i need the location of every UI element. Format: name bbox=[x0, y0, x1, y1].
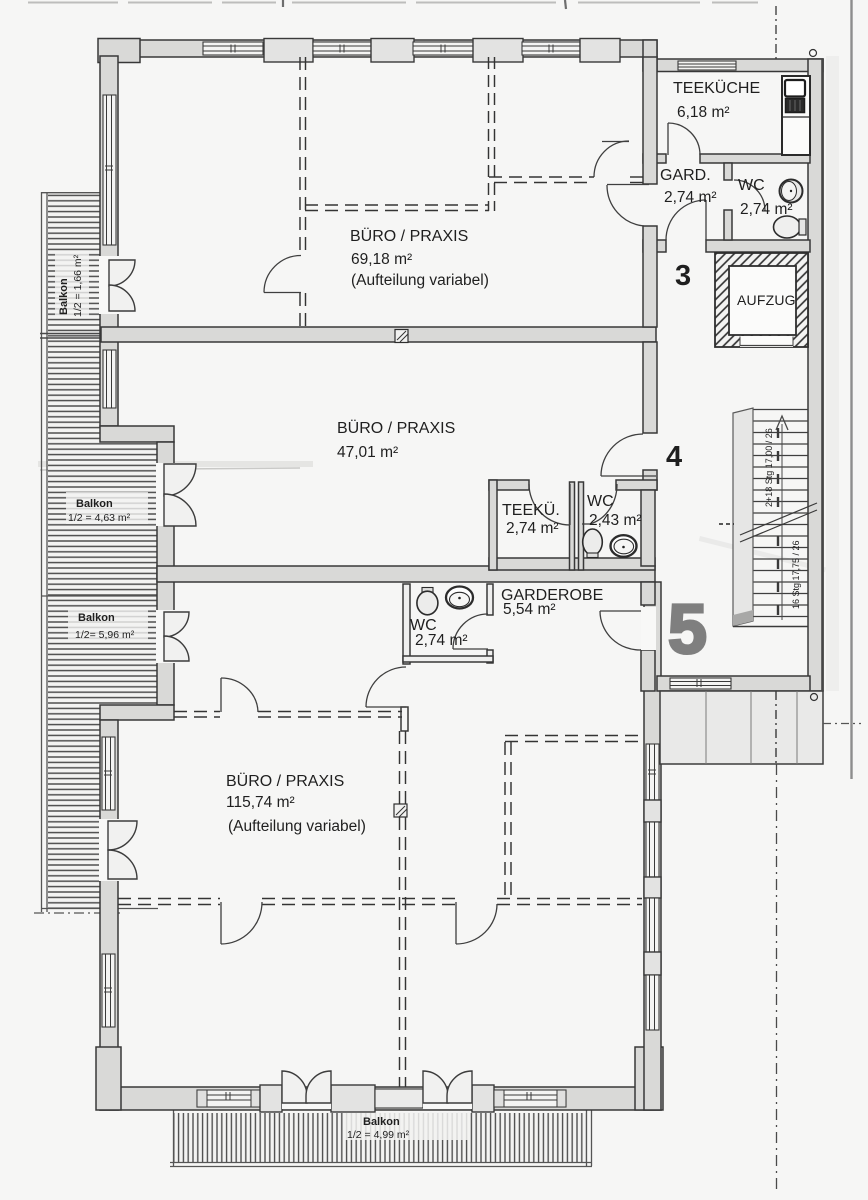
svg-text:WC: WC bbox=[587, 493, 614, 510]
svg-text:5,54 m²: 5,54 m² bbox=[503, 601, 556, 618]
svg-text:4: 4 bbox=[666, 441, 682, 473]
svg-text:6,18 m²: 6,18 m² bbox=[677, 104, 730, 121]
svg-text:TEEKÜCHE: TEEKÜCHE bbox=[673, 79, 760, 97]
svg-text:115,74 m²: 115,74 m² bbox=[226, 794, 295, 811]
svg-text:3: 3 bbox=[675, 260, 691, 292]
svg-text:BÜRO / PRAXIS: BÜRO / PRAXIS bbox=[350, 227, 468, 245]
svg-text:WC: WC bbox=[738, 177, 765, 194]
svg-text:AUFZUG: AUFZUG bbox=[737, 292, 796, 308]
svg-text:Balkon: Balkon bbox=[58, 278, 70, 315]
svg-text:BÜRO / PRAXIS: BÜRO / PRAXIS bbox=[226, 772, 344, 790]
svg-text:2,74 m²: 2,74 m² bbox=[740, 201, 793, 218]
svg-text:1/2= 5,96 m²: 1/2= 5,96 m² bbox=[75, 629, 135, 641]
svg-text:TEEKÜ.: TEEKÜ. bbox=[502, 501, 560, 519]
svg-text:2,74 m²: 2,74 m² bbox=[506, 520, 559, 537]
svg-text:Balkon: Balkon bbox=[76, 498, 113, 510]
svg-text:2,74 m²: 2,74 m² bbox=[415, 632, 468, 649]
svg-text:(Aufteilung variabel): (Aufteilung variabel) bbox=[351, 272, 489, 289]
svg-text:47,01 m²: 47,01 m² bbox=[337, 444, 398, 461]
svg-text:(Aufteilung variabel): (Aufteilung variabel) bbox=[228, 818, 366, 835]
svg-text:1/2 = 1,66 m²: 1/2 = 1,66 m² bbox=[72, 254, 84, 317]
svg-text:5: 5 bbox=[668, 590, 707, 668]
svg-text:GARD.: GARD. bbox=[660, 167, 711, 184]
svg-text:69,18 m²: 69,18 m² bbox=[351, 251, 412, 268]
svg-text:16 Stg 17,75 / 26: 16 Stg 17,75 / 26 bbox=[791, 540, 801, 609]
svg-text:2+18 Stg 17,00 / 26: 2+18 Stg 17,00 / 26 bbox=[764, 428, 774, 507]
svg-text:BÜRO / PRAXIS: BÜRO / PRAXIS bbox=[337, 419, 455, 437]
svg-text:Balkon: Balkon bbox=[78, 612, 115, 624]
svg-text:Balkon: Balkon bbox=[363, 1116, 400, 1128]
svg-text:1/2 = 4,99 m²: 1/2 = 4,99 m² bbox=[347, 1129, 410, 1141]
svg-text:2,43 m²: 2,43 m² bbox=[589, 512, 642, 529]
svg-text:1/2 = 4,63 m²: 1/2 = 4,63 m² bbox=[68, 512, 131, 524]
svg-text:2,74 m²: 2,74 m² bbox=[664, 189, 717, 206]
